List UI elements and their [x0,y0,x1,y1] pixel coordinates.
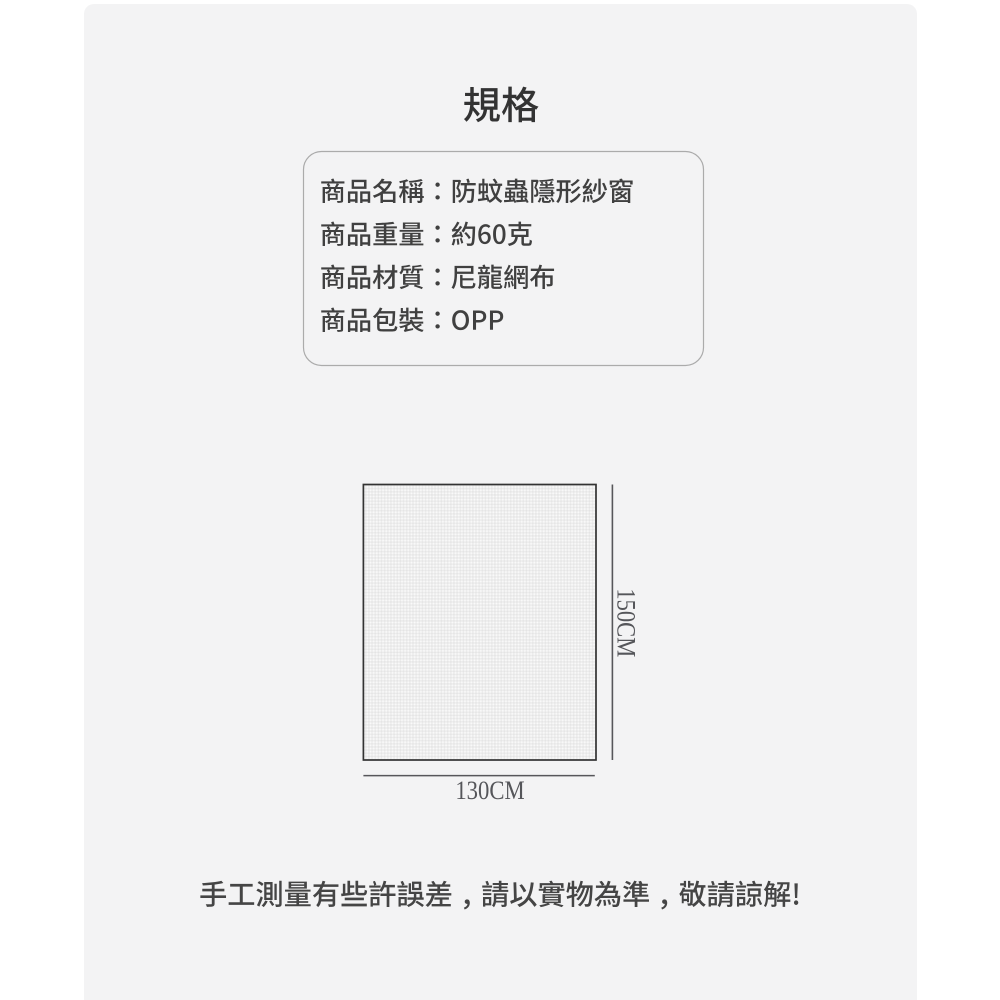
svg-text:130CM: 130CM [455,776,524,805]
svg-text:150CM: 150CM [612,588,641,657]
